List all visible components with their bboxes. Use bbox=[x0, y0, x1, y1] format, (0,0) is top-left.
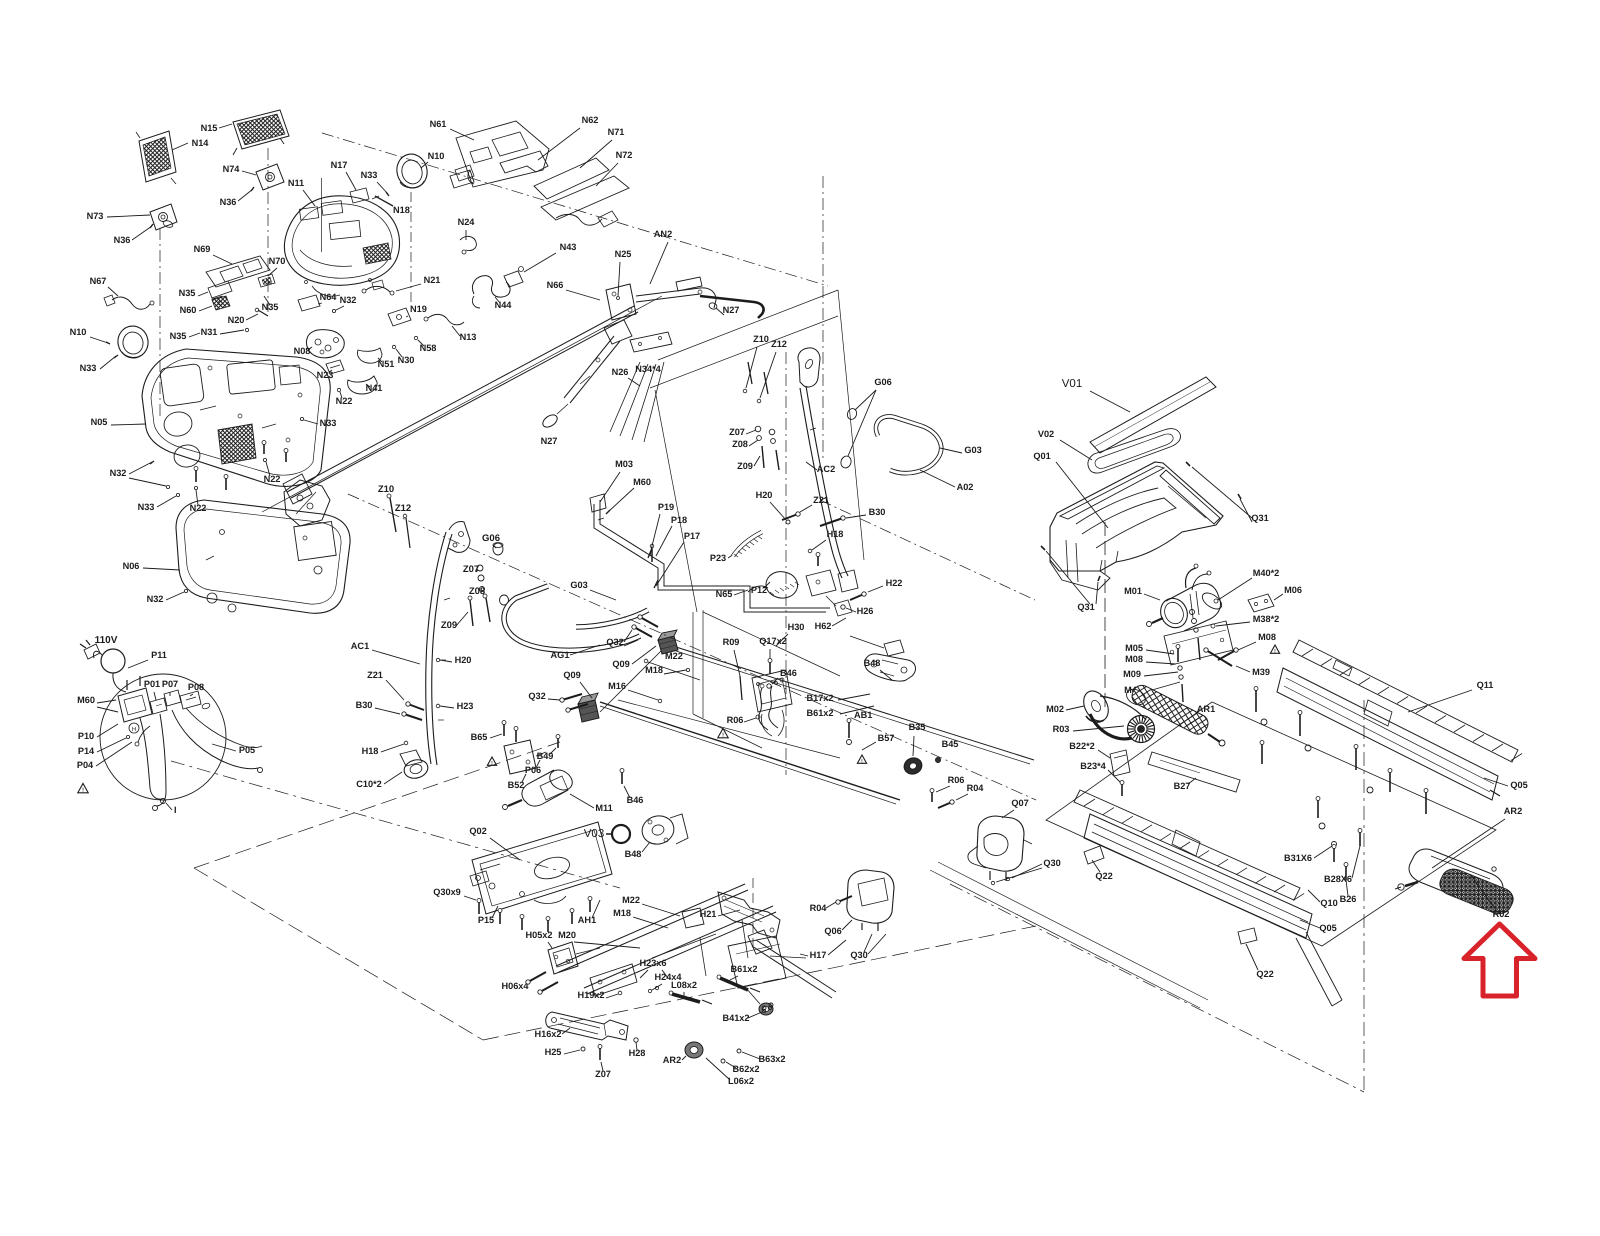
svg-text:P12: P12 bbox=[751, 585, 767, 595]
svg-text:G06: G06 bbox=[482, 533, 500, 544]
svg-text:P07: P07 bbox=[162, 679, 178, 689]
svg-text:H18: H18 bbox=[362, 746, 379, 756]
svg-text:P14: P14 bbox=[78, 746, 95, 756]
svg-text:N30: N30 bbox=[398, 355, 415, 365]
svg-text:AB1: AB1 bbox=[854, 710, 872, 720]
svg-text:Z08: Z08 bbox=[469, 586, 485, 597]
svg-text:N69: N69 bbox=[194, 244, 211, 254]
svg-text:H30: H30 bbox=[788, 622, 805, 632]
svg-text:N43: N43 bbox=[560, 242, 577, 252]
svg-text:N06: N06 bbox=[123, 561, 140, 571]
svg-text:N35: N35 bbox=[170, 331, 187, 341]
svg-text:A02: A02 bbox=[957, 482, 974, 492]
svg-text:N24: N24 bbox=[458, 217, 476, 227]
svg-text:B61x2: B61x2 bbox=[806, 708, 833, 718]
svg-text:N05: N05 bbox=[91, 417, 108, 427]
svg-text:M22: M22 bbox=[622, 895, 640, 905]
svg-text:H22: H22 bbox=[886, 578, 903, 588]
svg-text:N36: N36 bbox=[220, 197, 237, 207]
svg-text:B31X6: B31X6 bbox=[1284, 853, 1312, 863]
svg-text:B48: B48 bbox=[625, 849, 642, 859]
svg-text:P05: P05 bbox=[239, 745, 255, 755]
svg-text:P10: P10 bbox=[78, 731, 94, 741]
svg-text:B30: B30 bbox=[356, 700, 373, 710]
svg-text:Z09: Z09 bbox=[737, 461, 753, 471]
svg-text:AC1: AC1 bbox=[351, 641, 369, 651]
svg-text:N71: N71 bbox=[608, 127, 625, 137]
svg-text:Q32: Q32 bbox=[528, 691, 545, 701]
svg-text:M08: M08 bbox=[1125, 654, 1143, 664]
svg-text:Z10: Z10 bbox=[753, 334, 769, 344]
svg-text:B41x2: B41x2 bbox=[722, 1013, 749, 1023]
svg-text:AN2: AN2 bbox=[654, 229, 672, 239]
svg-text:AR2: AR2 bbox=[1504, 806, 1522, 816]
svg-text:N31: N31 bbox=[201, 327, 218, 337]
svg-text:P01: P01 bbox=[144, 679, 160, 689]
svg-text:N22: N22 bbox=[264, 474, 281, 484]
svg-text:N73: N73 bbox=[87, 211, 104, 221]
svg-text:B17x2: B17x2 bbox=[806, 693, 833, 703]
svg-text:AR2: AR2 bbox=[663, 1055, 681, 1065]
svg-text:Q05: Q05 bbox=[1319, 923, 1336, 933]
svg-text:V01: V01 bbox=[1062, 378, 1082, 390]
svg-text:N20: N20 bbox=[228, 315, 245, 325]
svg-text:H20: H20 bbox=[756, 490, 773, 500]
svg-text:AH1: AH1 bbox=[578, 915, 596, 925]
svg-text:Q31: Q31 bbox=[1251, 513, 1268, 523]
svg-text:H26: H26 bbox=[857, 606, 874, 616]
svg-text:B35: B35 bbox=[909, 722, 926, 732]
svg-text:M01: M01 bbox=[1124, 586, 1142, 596]
svg-text:Q31: Q31 bbox=[1077, 602, 1094, 612]
svg-text:B48: B48 bbox=[864, 658, 881, 668]
svg-text:N27: N27 bbox=[541, 436, 558, 446]
svg-text:Q01: Q01 bbox=[1033, 451, 1050, 461]
svg-text:P08: P08 bbox=[188, 682, 204, 692]
svg-text:N18: N18 bbox=[393, 205, 410, 215]
svg-text:N26: N26 bbox=[612, 367, 629, 377]
svg-text:N13: N13 bbox=[460, 332, 477, 342]
svg-text:N60: N60 bbox=[180, 305, 197, 315]
svg-text:Q09: Q09 bbox=[612, 659, 629, 669]
svg-text:N66: N66 bbox=[547, 280, 564, 290]
svg-text:Q05: Q05 bbox=[1510, 780, 1527, 790]
svg-text:N08: N08 bbox=[294, 346, 311, 356]
svg-text:M08: M08 bbox=[1258, 632, 1276, 642]
svg-text:M03: M03 bbox=[615, 459, 633, 469]
svg-text:N10: N10 bbox=[70, 327, 87, 337]
svg-text:G03: G03 bbox=[570, 580, 587, 590]
svg-text:M02: M02 bbox=[1046, 704, 1064, 714]
svg-text:Q30x9: Q30x9 bbox=[433, 887, 461, 897]
svg-text:N19: N19 bbox=[410, 304, 427, 314]
svg-text:Z08: Z08 bbox=[732, 439, 748, 449]
svg-text:N33: N33 bbox=[138, 502, 155, 512]
svg-text:Z09: Z09 bbox=[441, 620, 457, 631]
svg-text:M18: M18 bbox=[645, 665, 663, 675]
svg-text:R06: R06 bbox=[727, 715, 744, 725]
svg-text:M05: M05 bbox=[1125, 643, 1143, 653]
svg-text:N32: N32 bbox=[340, 295, 357, 305]
svg-text:R02: R02 bbox=[1493, 909, 1510, 919]
svg-text:M40*2: M40*2 bbox=[1253, 568, 1280, 578]
svg-text:V02: V02 bbox=[1038, 429, 1054, 439]
svg-text:B28X6: B28X6 bbox=[1324, 874, 1352, 884]
svg-text:H18: H18 bbox=[827, 529, 844, 539]
svg-text:B45: B45 bbox=[942, 739, 959, 749]
svg-text:M60: M60 bbox=[633, 477, 651, 487]
svg-text:H06x4: H06x4 bbox=[501, 981, 529, 991]
svg-text:B27: B27 bbox=[1174, 781, 1191, 791]
svg-text:N67: N67 bbox=[90, 276, 107, 286]
svg-text:M16: M16 bbox=[608, 681, 626, 691]
svg-text:M39: M39 bbox=[1252, 667, 1270, 677]
svg-text:B57: B57 bbox=[878, 733, 895, 743]
svg-text:N27: N27 bbox=[723, 305, 740, 315]
svg-text:M09: M09 bbox=[1123, 669, 1141, 679]
svg-text:M11: M11 bbox=[595, 803, 612, 813]
svg-text:N72: N72 bbox=[616, 150, 633, 160]
svg-text:N11: N11 bbox=[288, 178, 304, 188]
svg-text:R04: R04 bbox=[967, 783, 985, 793]
svg-text:M38*2: M38*2 bbox=[1253, 614, 1280, 624]
svg-text:N62: N62 bbox=[582, 115, 599, 125]
svg-text:!: ! bbox=[82, 788, 84, 794]
svg-text:Q11: Q11 bbox=[1477, 680, 1494, 690]
svg-text:B65: B65 bbox=[471, 732, 488, 742]
svg-text:M18: M18 bbox=[613, 908, 631, 918]
svg-text:L06x2: L06x2 bbox=[728, 1076, 754, 1086]
svg-text:R06: R06 bbox=[948, 775, 965, 785]
svg-text:N23: N23 bbox=[317, 370, 334, 380]
svg-text:L08x2: L08x2 bbox=[671, 980, 697, 990]
svg-text:B30: B30 bbox=[869, 507, 886, 517]
svg-text:H17: H17 bbox=[810, 950, 827, 960]
svg-text:Q17x2: Q17x2 bbox=[759, 636, 787, 646]
svg-text:C10*2: C10*2 bbox=[356, 779, 382, 789]
svg-text:Q30: Q30 bbox=[1043, 858, 1060, 868]
svg-text:N41: N41 bbox=[366, 383, 383, 393]
svg-text:Q32: Q32 bbox=[606, 637, 623, 647]
svg-text:P15: P15 bbox=[478, 915, 494, 925]
svg-text:P04: P04 bbox=[77, 760, 94, 770]
svg-text:H62: H62 bbox=[815, 621, 832, 631]
svg-text:!: ! bbox=[722, 733, 724, 739]
svg-text:N74: N74 bbox=[223, 164, 241, 174]
svg-text:N36: N36 bbox=[114, 235, 131, 245]
svg-text:Q07: Q07 bbox=[1011, 798, 1028, 808]
svg-text:N35: N35 bbox=[179, 288, 196, 298]
svg-text:N32: N32 bbox=[147, 594, 164, 604]
svg-text:R04: R04 bbox=[810, 903, 828, 913]
svg-text:N33: N33 bbox=[361, 170, 378, 180]
svg-text:Q09: Q09 bbox=[563, 670, 580, 680]
svg-text:B46: B46 bbox=[780, 668, 797, 678]
svg-text:N33: N33 bbox=[320, 418, 337, 428]
svg-text:Q22: Q22 bbox=[1256, 969, 1273, 979]
svg-text:G03: G03 bbox=[964, 445, 981, 455]
svg-text:N10: N10 bbox=[428, 151, 445, 161]
svg-text:B22*2: B22*2 bbox=[1069, 741, 1095, 751]
svg-text:H16x2: H16x2 bbox=[534, 1029, 561, 1039]
svg-text:R03: R03 bbox=[1053, 724, 1070, 734]
svg-text:110V: 110V bbox=[95, 635, 118, 646]
svg-text:N14: N14 bbox=[192, 138, 210, 148]
svg-text:AG1: AG1 bbox=[551, 650, 570, 660]
svg-text:N21: N21 bbox=[424, 275, 441, 285]
svg-text:Q10: Q10 bbox=[1320, 898, 1337, 908]
svg-text:N22: N22 bbox=[336, 396, 353, 406]
svg-text:Q02: Q02 bbox=[469, 826, 486, 836]
svg-text:Z07: Z07 bbox=[729, 427, 745, 437]
svg-text:Z21: Z21 bbox=[813, 495, 829, 505]
svg-text:N70: N70 bbox=[269, 256, 286, 266]
svg-text:H25: H25 bbox=[545, 1047, 562, 1057]
svg-text:Q30: Q30 bbox=[850, 950, 867, 960]
svg-text:AR1: AR1 bbox=[1197, 704, 1215, 714]
svg-text:N34*4: N34*4 bbox=[635, 364, 661, 374]
svg-text:M20: M20 bbox=[558, 930, 576, 940]
svg-text:Q06: Q06 bbox=[824, 926, 841, 936]
svg-text:I: I bbox=[174, 805, 177, 815]
svg-text:P19: P19 bbox=[658, 502, 674, 512]
svg-text:Z07: Z07 bbox=[463, 564, 479, 575]
svg-text:P11: P11 bbox=[151, 650, 167, 660]
svg-text:N35: N35 bbox=[262, 302, 279, 312]
svg-text:N64: N64 bbox=[320, 292, 338, 302]
svg-text:H: H bbox=[132, 726, 136, 733]
svg-text:H20: H20 bbox=[455, 655, 472, 665]
svg-text:Q22: Q22 bbox=[1095, 871, 1112, 881]
svg-text:N61: N61 bbox=[430, 119, 447, 129]
svg-text:B63x2: B63x2 bbox=[758, 1054, 785, 1064]
svg-text:M22: M22 bbox=[665, 651, 683, 661]
svg-text:N32: N32 bbox=[110, 468, 127, 478]
svg-text:N15: N15 bbox=[201, 123, 218, 133]
svg-text:B23*4: B23*4 bbox=[1080, 761, 1106, 771]
svg-text:V03: V03 bbox=[584, 828, 604, 840]
svg-text:Z10: Z10 bbox=[378, 484, 394, 495]
svg-text:P06: P06 bbox=[525, 765, 541, 775]
svg-text:H19x2: H19x2 bbox=[577, 990, 604, 1000]
svg-text:P23: P23 bbox=[710, 553, 726, 563]
svg-text:Z12: Z12 bbox=[395, 503, 411, 514]
svg-text:AC2: AC2 bbox=[817, 464, 835, 474]
svg-text:B62x2: B62x2 bbox=[732, 1064, 759, 1074]
svg-text:M60: M60 bbox=[77, 695, 95, 705]
svg-text:M06: M06 bbox=[1284, 585, 1302, 595]
svg-text:N17: N17 bbox=[331, 160, 348, 170]
svg-text:N25: N25 bbox=[615, 249, 632, 259]
svg-text:N44: N44 bbox=[495, 300, 513, 310]
svg-text:H23x6: H23x6 bbox=[639, 958, 666, 968]
svg-text:R09: R09 bbox=[723, 637, 740, 647]
svg-text:G06: G06 bbox=[874, 377, 891, 387]
svg-text:B61x2: B61x2 bbox=[730, 964, 757, 974]
svg-text:H23: H23 bbox=[457, 701, 474, 711]
svg-text:P17: P17 bbox=[684, 531, 700, 541]
svg-text:N33: N33 bbox=[80, 363, 97, 373]
svg-text:Z21: Z21 bbox=[367, 670, 383, 680]
